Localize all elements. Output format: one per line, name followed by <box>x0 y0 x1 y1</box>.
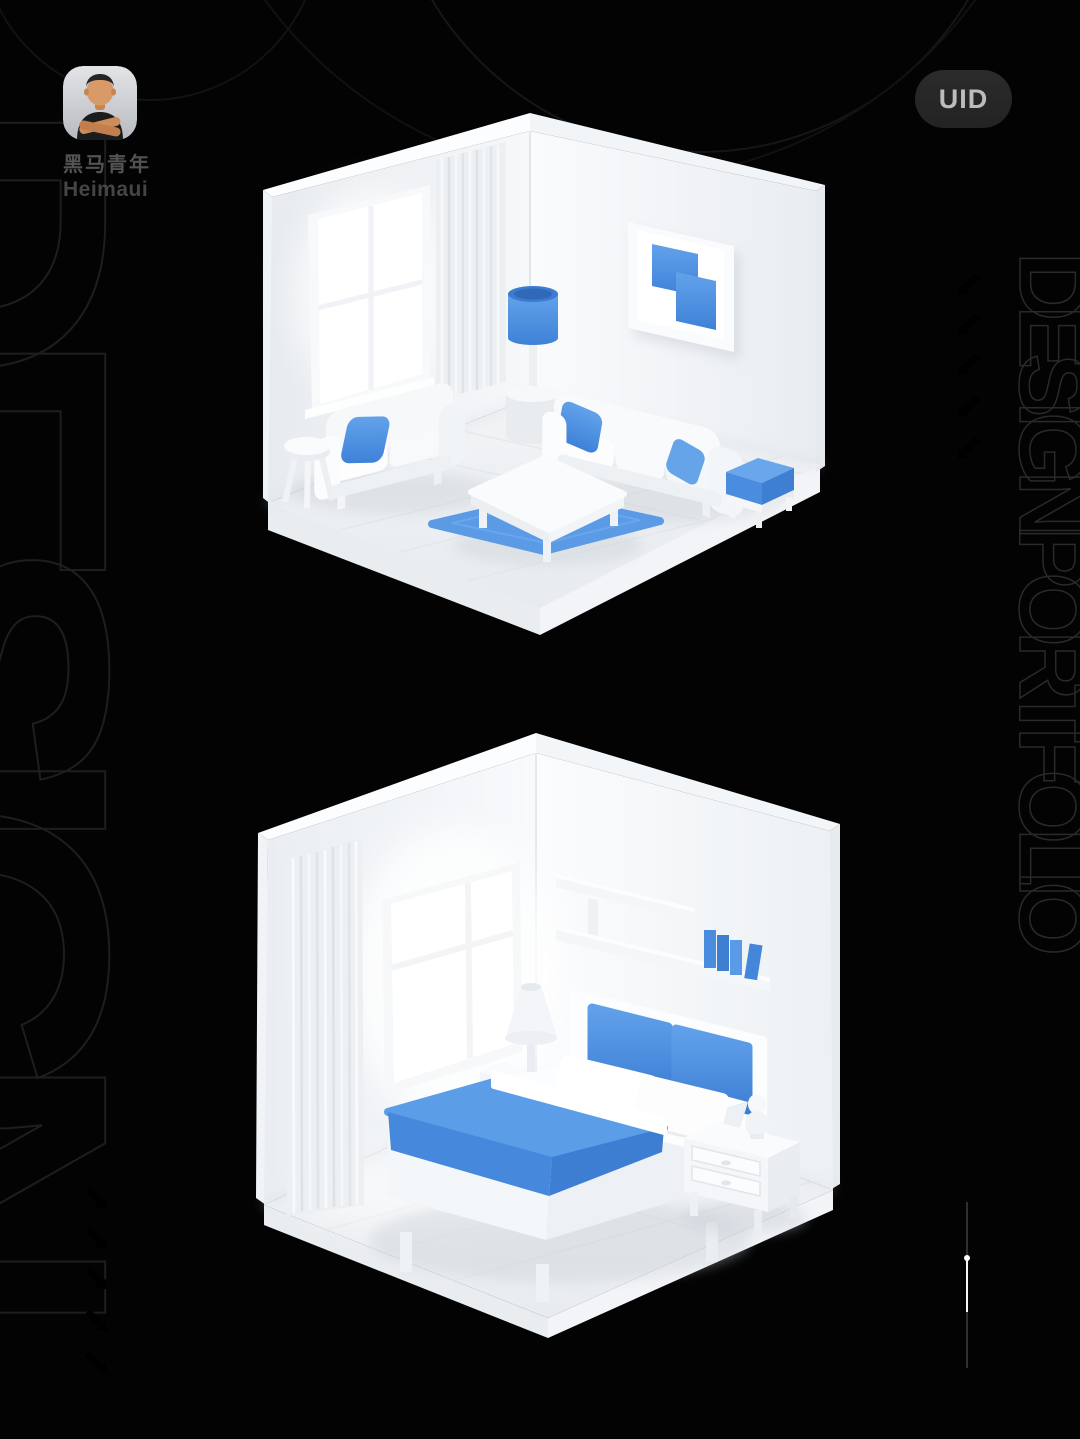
uid-badge-label: UID <box>939 84 989 115</box>
arrow-down-right-icon <box>84 1186 112 1214</box>
scroll-indicator[interactable] <box>966 1202 968 1368</box>
profile-name-cn: 黑马青年 <box>63 148 263 177</box>
profile-name-en: Heimaui <box>63 178 263 202</box>
avatar[interactable] <box>63 66 137 140</box>
small-lamp <box>745 1094 769 1139</box>
arrow-down-right-icon <box>84 1308 112 1336</box>
arrow-down-right-icon <box>84 1226 112 1254</box>
arrow-down-left-icon <box>953 394 981 422</box>
arrow-down-left-icon <box>953 312 981 340</box>
scroll-indicator-dot <box>964 1255 970 1261</box>
curtain <box>285 838 364 1216</box>
arrow-down-left-icon <box>953 352 981 380</box>
window <box>290 185 450 419</box>
arrow-down-left-icon <box>953 272 981 300</box>
arrow-down-right-icon <box>84 1266 112 1294</box>
scroll-indicator-progress <box>966 1258 968 1312</box>
uid-badge[interactable]: UID <box>915 70 1012 128</box>
arrow-down-right-icon <box>84 1350 112 1378</box>
arrow-down-left-icon <box>953 436 981 464</box>
curtain <box>436 142 506 400</box>
bedroom-illustration <box>245 720 870 1345</box>
poster: DESIGN DESIGNPORTFOLIO 黑马青年 Heimaui <box>0 0 1080 1439</box>
vertical-outline-text-right: DESIGNPORTFOLIO <box>1004 252 1080 940</box>
giant-outline-text-left: DESIGN <box>0 96 132 1282</box>
profile-block: 黑马青年 Heimaui <box>63 66 263 202</box>
living-room-illustration <box>250 100 865 645</box>
